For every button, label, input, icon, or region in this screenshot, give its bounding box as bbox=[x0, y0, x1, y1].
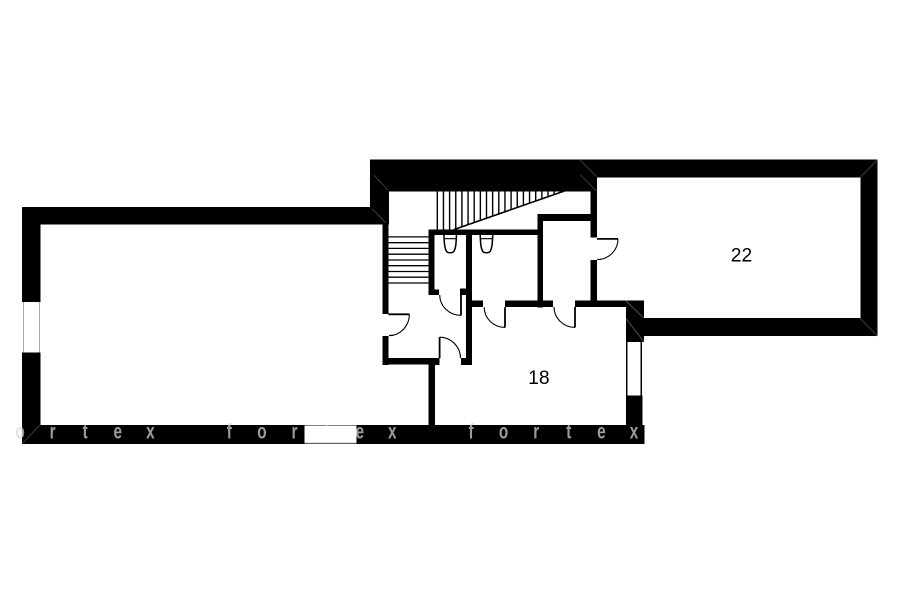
svg-text:r: r bbox=[50, 419, 56, 443]
svg-text:r: r bbox=[533, 419, 539, 443]
svg-text:o: o bbox=[15, 419, 24, 443]
svg-text:o: o bbox=[257, 419, 266, 443]
svg-text:e: e bbox=[597, 419, 606, 443]
svg-text:f: f bbox=[468, 419, 474, 443]
svg-text:e: e bbox=[114, 419, 123, 443]
svg-text:x: x bbox=[388, 419, 397, 443]
svg-text:r: r bbox=[292, 419, 298, 443]
svg-text:x: x bbox=[146, 419, 155, 443]
svg-text:o: o bbox=[499, 419, 508, 443]
svg-text:22: 22 bbox=[731, 245, 752, 266]
svg-text:e: e bbox=[355, 419, 364, 443]
svg-text:x: x bbox=[630, 419, 639, 443]
svg-text:t: t bbox=[83, 419, 88, 443]
svg-text:18: 18 bbox=[528, 368, 549, 389]
svg-text:f: f bbox=[227, 419, 233, 443]
svg-text:t: t bbox=[566, 419, 571, 443]
